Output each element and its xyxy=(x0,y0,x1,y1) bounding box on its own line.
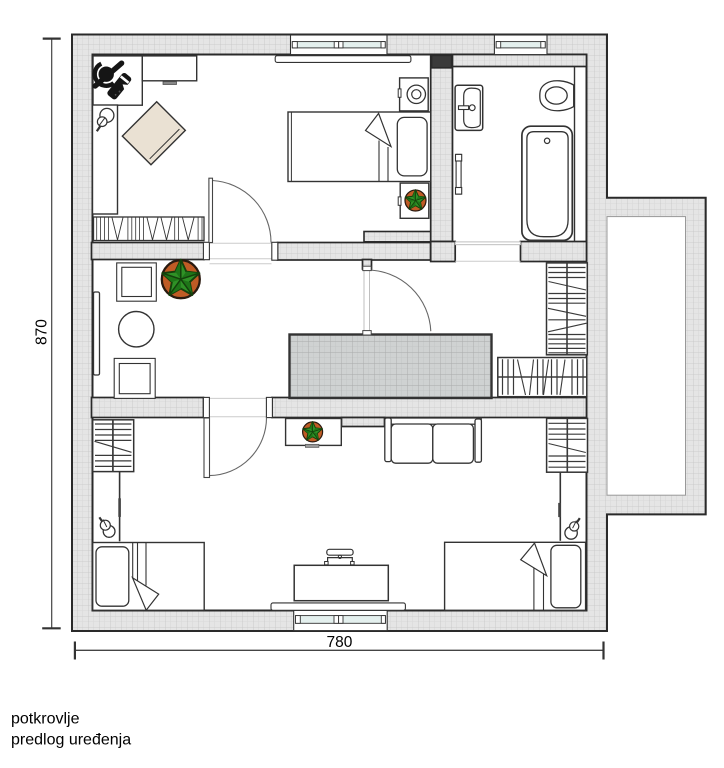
svg-text:predlog uređenja: predlog uređenja xyxy=(11,732,131,749)
svg-text:potkrovlje: potkrovlje xyxy=(11,711,80,728)
svg-text:780: 780 xyxy=(326,634,352,651)
svg-text:870: 870 xyxy=(34,319,51,345)
